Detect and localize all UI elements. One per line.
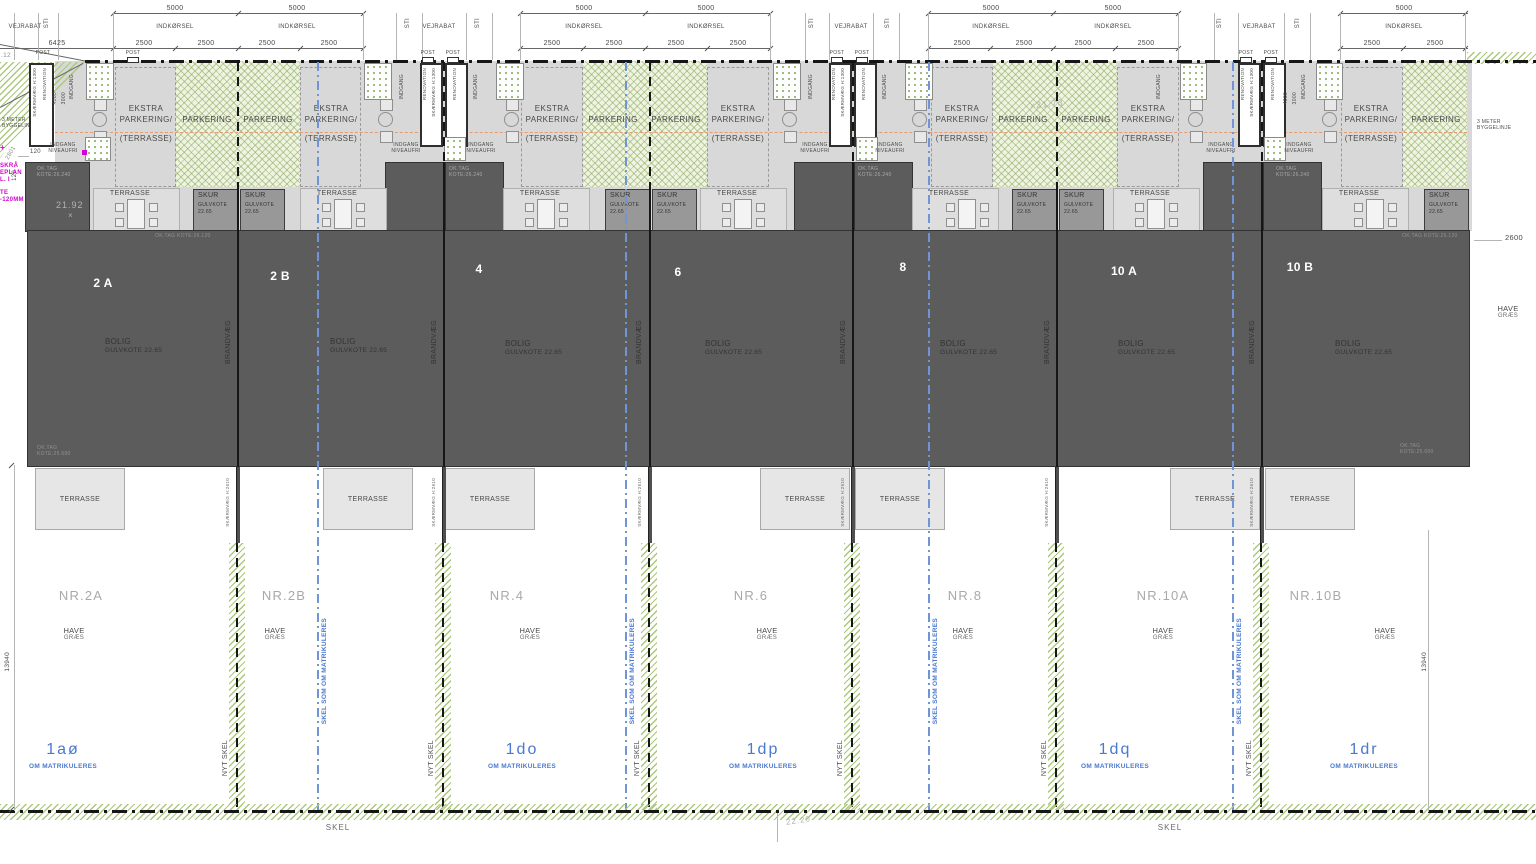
dim-2500: 2500: [1138, 40, 1155, 48]
bolig: BOLIG: [505, 340, 562, 349]
terrasse-label: TERRASSE: [60, 496, 100, 504]
parkering-label: PARKERING: [1411, 116, 1460, 125]
planter-box: [85, 137, 111, 161]
ekstra-l1: EKSTRA: [1345, 103, 1398, 114]
graes: GRÆS: [1152, 635, 1173, 642]
roof-kote-label: OK.TAGKOTE:25.690: [1400, 444, 1434, 455]
terrace-furniture: [320, 199, 368, 233]
post-box: [1240, 57, 1252, 63]
skur-kote: 22.65: [1017, 210, 1031, 216]
nyt-skel-line: [851, 543, 853, 810]
nr-label: NR.6: [734, 589, 768, 603]
screen-wall: [1260, 467, 1264, 543]
graes: GRÆS: [756, 635, 777, 642]
nr-label: NR.10B: [1290, 589, 1343, 603]
planter-box: [1316, 63, 1343, 100]
have-graes-label: HAVEGRÆS: [1152, 627, 1173, 642]
sti-label: STI: [809, 18, 816, 28]
post-box: [447, 57, 459, 63]
screen-wall: [236, 467, 240, 543]
dim-5000: 5000: [289, 5, 306, 13]
blue-skel-line: [625, 62, 627, 810]
terrasse-label: TERRASSE: [348, 496, 388, 504]
entry-roof-block: [385, 162, 444, 232]
table-icon: [537, 199, 555, 229]
skel-line-bottom: [0, 810, 1536, 813]
oktag: OK.TAG: [1402, 233, 1422, 239]
dim-extension-line: [14, 465, 15, 811]
ekstra-l2: PARKERING/: [712, 114, 765, 125]
dim-2500: 2500: [321, 40, 338, 48]
brandvaeg-label: BRANDVÆG: [225, 320, 233, 364]
note-magenta: TE: [0, 190, 8, 197]
indgang-label: INDGANG: [1157, 74, 1163, 99]
dim-line: [0, 48, 363, 49]
ekstra-l3: (TERRASSE): [120, 133, 173, 144]
indkorsel-label: INDKØRSEL: [1094, 24, 1131, 31]
chair-icon: [356, 218, 365, 227]
planter-box: [86, 63, 114, 100]
terrasse-label: TERRASSE: [785, 496, 825, 504]
bolig: BOLIG: [705, 340, 762, 349]
bolig: BOLIG: [105, 338, 162, 347]
om-matrikuleres-label: OM MATRIKULERES: [29, 763, 97, 770]
terrasse-label: TERRASSE: [1290, 496, 1330, 504]
ekstra-parkering-label: EKSTRAPARKERING/(TERRASSE): [526, 103, 579, 144]
boundary-line: [649, 188, 651, 467]
planter-box: [444, 137, 466, 161]
kote: KOTE:25.690: [37, 452, 71, 458]
post-label: POST: [421, 51, 436, 57]
extension-line: [113, 13, 114, 60]
planter-box: [496, 63, 524, 100]
bolig: BOLIG: [940, 340, 997, 349]
dim-3000: 3000: [1293, 92, 1299, 104]
terrasse-label: TERRASSE: [880, 496, 920, 504]
ekstra-l1: EKSTRA: [936, 103, 989, 114]
dim-5000: 5000: [576, 5, 593, 13]
parkering-label: PARKERING: [588, 116, 637, 125]
have: HAVE: [63, 627, 84, 635]
chair-icon: [946, 218, 955, 227]
renovation-box: RENOVATION SKÆRMVÆG H:1300: [1238, 63, 1261, 147]
roof-kote-label: OK.TAGKOTE:26.240: [37, 167, 71, 178]
bolig: BOLIG: [1118, 340, 1175, 349]
skur-kote: 22.65: [657, 210, 671, 216]
post-label: POST: [830, 51, 845, 57]
chair-icon: [980, 203, 989, 212]
skaermvaeg-label: SKÆRMVÆG H:1300: [432, 68, 437, 117]
chair-icon: [115, 218, 124, 227]
have-graes-label: HAVEGRÆS: [63, 627, 84, 642]
ekstra-parkering-label: EKSTRAPARKERING/(TERRASSE): [120, 103, 173, 144]
boundary-line: [852, 162, 854, 467]
nyt-skel-label: NYT SKEL: [1246, 740, 1254, 776]
terrasse-label: TERRASSE: [110, 190, 150, 198]
chair-icon: [946, 203, 955, 212]
parcel-id: 1aø: [46, 741, 80, 759]
renovation-box: RENOVATION: [854, 63, 877, 147]
gulvkote: GULVKOTE 22.65: [1118, 349, 1175, 356]
terrasse-label: TERRASSE: [1339, 190, 1379, 198]
sti-label: STI: [405, 18, 412, 28]
terrace-furniture: [720, 199, 768, 233]
post-label: POST: [36, 51, 51, 57]
ekstra-parkering-label: EKSTRAPARKERING/(TERRASSE): [305, 103, 358, 144]
terrasse-label: TERRASSE: [1130, 190, 1170, 198]
extension-line: [14, 13, 15, 60]
skur-gulvkote: GULVKOTE: [657, 203, 686, 209]
chair-icon: [1135, 218, 1144, 227]
extension-line: [1178, 13, 1179, 60]
planter-box: [1264, 137, 1286, 161]
ekstra-l2: PARKERING/: [526, 114, 579, 125]
have: HAVE: [264, 627, 285, 635]
chair-icon: [559, 218, 568, 227]
parcel-id: 1do: [506, 741, 539, 759]
dim-3000: 3000: [62, 92, 68, 104]
kote: KOTE:26.240: [449, 173, 483, 179]
kote: KOTE:26.120: [177, 233, 211, 239]
nr-label: NR.8: [948, 589, 982, 603]
indkorsel-label: INDKØRSEL: [565, 24, 602, 31]
skaermvaeg-label: SKÆRMVÆG H:1300: [1250, 68, 1255, 117]
bolig-label: BOLIGGULVKOTE 22.65: [105, 338, 162, 354]
unit-number: 10 B: [1287, 261, 1314, 274]
chair-icon: [115, 203, 124, 212]
skaermvaeg-2610-label: SKÆRMVÆG H:2610: [432, 478, 437, 527]
skur-gulvkote: GULVKOTE: [1017, 203, 1046, 209]
terrasse-label: TERRASSE: [470, 496, 510, 504]
chair-icon: [756, 203, 765, 212]
dim-2500: 2500: [136, 40, 153, 48]
extension-line: [1465, 13, 1466, 60]
bolig-label: BOLIGGULVKOTE 22.65: [940, 340, 997, 356]
nyt-skel-line: [442, 543, 444, 810]
boundary-line: [443, 62, 445, 162]
extension-line: [873, 13, 874, 60]
dim-2500: 2500: [730, 40, 747, 48]
have: HAVE: [952, 627, 973, 635]
skur-box: SKURGULVKOTE22.65: [1012, 189, 1057, 231]
renovation-box: RENOVATION SKÆRMVÆG H:1300: [829, 63, 852, 147]
kote: KOTE:25.690: [1400, 450, 1434, 456]
indgang-label: INDGANG: [400, 74, 406, 99]
ekstra-parkering-label: EKSTRAPARKERING/(TERRASSE): [712, 103, 765, 144]
terrasse-label: TERRASSE: [520, 190, 560, 198]
niveaufri-l2: NIVEAUFRI: [466, 149, 495, 155]
terrace-furniture: [944, 199, 992, 233]
indgang-label: INDGANG: [883, 74, 889, 99]
ekstra-parkering-label: EKSTRAPARKERING/(TERRASSE): [936, 103, 989, 144]
byggelinje-line2: BYGGELINJE: [1477, 126, 1511, 132]
ekstra-parkering-label: EKSTRAPARKERING/(TERRASSE): [1122, 103, 1175, 144]
table-icon: [734, 199, 752, 229]
nr-label: NR.4: [490, 589, 524, 603]
note-marker: +: [0, 144, 5, 153]
chair-icon: [559, 203, 568, 212]
dim-2500: 2500: [954, 40, 971, 48]
renovation-box: RENOVATION: [445, 63, 468, 147]
ekstra-l1: EKSTRA: [305, 103, 358, 114]
have: HAVE: [1374, 627, 1395, 635]
renovation-label: RENOVATION: [453, 68, 458, 100]
bolig: BOLIG: [330, 338, 387, 347]
grill-icon: [92, 112, 107, 127]
dim-2500: 2500: [1075, 40, 1092, 48]
spot-elevation-marker: ×: [68, 212, 73, 221]
om-matrikuleres-label: OM MATRIKULERES: [729, 763, 797, 770]
extension-line: [466, 13, 467, 60]
extension-line: [928, 13, 929, 60]
ekstra-l3: (TERRASSE): [526, 133, 579, 144]
grill-icon: [1188, 112, 1203, 127]
unit-number: 8: [900, 261, 907, 274]
post-box: [127, 57, 139, 63]
parcel-id: 1dp: [747, 741, 780, 759]
indgang-niveaufri-label: INDGANGNIVEAUFRI: [1284, 143, 1313, 154]
brandvaeg-label: BRANDVÆG: [636, 320, 644, 364]
dim-2500: 2500: [1016, 40, 1033, 48]
post-label: POST: [1239, 51, 1254, 57]
gulvkote: GULVKOTE 22.65: [705, 349, 762, 356]
nyt-skel-label: NYT SKEL: [1041, 740, 1049, 776]
have-graes-label: HAVEGRÆS: [519, 627, 540, 642]
bolig-label: BOLIGGULVKOTE 22.65: [330, 338, 387, 354]
dim-2600: 2600: [1505, 234, 1523, 242]
graes: GRÆS: [63, 635, 84, 642]
nr-label: NR.2A: [59, 589, 103, 603]
dim-4000: 4000: [53, 92, 59, 104]
indkorsel-label: INDKØRSEL: [156, 24, 193, 31]
boundary-line: [237, 62, 239, 188]
have-graes-label: HAVEGRÆS: [1374, 627, 1395, 642]
post-label: POST: [126, 51, 141, 57]
niveaufri-l2: NIVEAUFRI: [391, 149, 420, 155]
dim-4000: 4000: [1284, 92, 1290, 104]
site-plan: .12 3 METER BYGGELINJE 3 METER BYGGELINJ…: [0, 0, 1536, 864]
vejrabat-label: VEJRABAT: [423, 24, 456, 31]
bolig-label: BOLIGGULVKOTE 22.65: [705, 340, 762, 356]
skur-box: SKURGULVKOTE22.65: [605, 189, 650, 231]
sti-label: STI: [1217, 18, 1224, 28]
screen-wall: [851, 467, 855, 543]
indgang-niveaufri-label: INDGANGNIVEAUFRI: [466, 143, 495, 154]
ekstra-l3: (TERRASSE): [1345, 133, 1398, 144]
roof-kote-label: OK.TAGKOTE:26.240: [1276, 167, 1310, 178]
extension-line: [58, 13, 59, 60]
skaermvaeg-2610-label: SKÆRMVÆG H:2610: [226, 478, 231, 527]
extension-line: [492, 13, 493, 60]
renovation-box: RENOVATION: [1263, 63, 1286, 147]
dim-5000: 5000: [698, 5, 715, 13]
terrasse-label: TERRASSE: [929, 190, 969, 198]
renovation-label: RENOVATION: [423, 68, 428, 100]
skaermvaeg-2610-label: SKÆRMVÆG H:2610: [1250, 478, 1255, 527]
boundary-line: [1261, 162, 1263, 467]
chair-icon: [356, 203, 365, 212]
parkering-label: PARKERING: [651, 116, 700, 125]
ekstra-l1: EKSTRA: [712, 103, 765, 114]
skur-label: SKUR: [1017, 192, 1038, 200]
extension-line: [396, 13, 397, 60]
vejrabat-label: VEJRABAT: [835, 24, 868, 31]
skaermvaeg-2610-label: SKÆRMVÆG H:2610: [841, 478, 846, 527]
chair-icon: [756, 218, 765, 227]
indgang-label: INDGANG: [474, 74, 480, 99]
bolig-label: BOLIGGULVKOTE 22.65: [505, 340, 562, 356]
graes: GRÆS: [1497, 313, 1518, 320]
renovation-label: RENOVATION: [1241, 68, 1246, 100]
bolig-label: BOLIGGULVKOTE 22.65: [1118, 340, 1175, 356]
note-magenta: -120MM: [0, 197, 24, 204]
skur-gulvkote: GULVKOTE: [1064, 203, 1093, 209]
corner-ref: .12: [1, 52, 11, 59]
renovation-label: RENOVATION: [1271, 68, 1276, 100]
unit-number: 2 B: [270, 270, 290, 283]
dim-120: 120: [30, 149, 41, 156]
skur-gulvkote: GULVKOTE: [245, 203, 274, 209]
ekstra-l1: EKSTRA: [120, 103, 173, 114]
boundary-line: [1261, 62, 1263, 162]
byggelinje-label: 3 METER BYGGELINJE: [1477, 120, 1511, 131]
dim-6425: 6425: [49, 40, 66, 48]
ekstra-l1: EKSTRA: [526, 103, 579, 114]
post-label: POST: [446, 51, 461, 57]
boundary-line: [852, 62, 854, 162]
nr-label: NR.10A: [1137, 589, 1190, 603]
graes: GRÆS: [952, 635, 973, 642]
boundary-line: [649, 62, 651, 188]
dim-13940: 13940: [1421, 652, 1428, 672]
chair-icon: [322, 218, 331, 227]
screen-wall: [442, 467, 446, 543]
ekstra-parkering-label: EKSTRAPARKERING/(TERRASSE): [1345, 103, 1398, 144]
skur-label: SKUR: [657, 192, 678, 200]
gulvkote: GULVKOTE 22.65: [105, 347, 162, 354]
screen-wall: [1055, 467, 1059, 543]
skur-box: SKURGULVKOTE22.65: [193, 189, 238, 231]
oktag: OK.TAG: [155, 233, 175, 239]
dim-2500: 2500: [259, 40, 276, 48]
skur-label: SKUR: [610, 192, 631, 200]
terrace-furniture: [523, 199, 571, 233]
post-label: POST: [855, 51, 870, 57]
planter-box: [773, 63, 801, 100]
dim-5000: 5000: [167, 5, 184, 13]
table-icon: [958, 199, 976, 229]
brandvaeg-label: BRANDVÆG: [840, 320, 848, 364]
grill-icon: [504, 112, 519, 127]
om-matrikuleres-label: OM MATRIKULERES: [1330, 763, 1398, 770]
chair-icon: [722, 218, 731, 227]
nyt-skel-line: [648, 543, 650, 810]
skel-som-label: SKEL SOM OM MATRIKULERES: [932, 618, 939, 724]
dim-5000: 5000: [983, 5, 1000, 13]
note-magenta: L. I: [0, 177, 10, 184]
extension-line: [1214, 13, 1215, 60]
gulvkote: GULVKOTE 22.65: [940, 349, 997, 356]
sti-label: STI: [475, 18, 482, 28]
skur-box: SKURGULVKOTE22.65: [240, 189, 285, 231]
sti-label: STI: [44, 18, 51, 28]
skur-label: SKUR: [1064, 192, 1085, 200]
screen-wall: [648, 467, 652, 543]
unit-number: 10 A: [1111, 265, 1137, 278]
extension-line: [770, 13, 771, 60]
skel-som-label: SKEL SOM OM MATRIKULERES: [321, 618, 328, 724]
kote: KOTE:26.120: [1424, 233, 1458, 239]
niveaufri-l2: NIVEAUFRI: [48, 149, 77, 155]
blue-skel-line: [928, 62, 930, 810]
skur-kote: 22.65: [245, 210, 259, 216]
indgang-niveaufri-label: INDGANGNIVEAUFRI: [800, 143, 829, 154]
graes: GRÆS: [1374, 635, 1395, 642]
renovation-label: RENOVATION: [43, 68, 48, 100]
ekstra-l3: (TERRASSE): [936, 133, 989, 144]
note-magenta: EPLAN: [0, 170, 22, 177]
skur-kote: 22.65: [198, 210, 212, 216]
unit-number: 6: [675, 266, 682, 279]
terrasse-label: TERRASSE: [1195, 496, 1235, 504]
chair-icon: [1388, 218, 1397, 227]
table-icon: [1366, 199, 1384, 229]
kote: KOTE:26.240: [37, 173, 71, 179]
terrace-furniture: [113, 199, 161, 233]
brandvaeg-label: BRANDVÆG: [431, 320, 439, 364]
dim-13940: 13940: [4, 652, 11, 672]
skaermvaeg-2610-label: SKÆRMVÆG H:2610: [1045, 478, 1050, 527]
indgang-niveaufri-label: INDGANGNIVEAUFRI: [48, 143, 77, 154]
have-graes-label: HAVEGRÆS: [952, 627, 973, 642]
indkorsel-label: INDKØRSEL: [278, 24, 315, 31]
chair-icon: [525, 203, 534, 212]
roof-kote-label: OK.TAG KOTE:26.120: [155, 234, 211, 240]
post-box: [422, 57, 434, 63]
renovation-label: RENOVATION: [832, 68, 837, 100]
entry-roof-block: [794, 162, 853, 232]
dim-2500: 2500: [198, 40, 215, 48]
skur-label: SKUR: [198, 192, 219, 200]
kote: KOTE:26.240: [858, 173, 892, 179]
chair-icon: [1388, 203, 1397, 212]
chair-icon: [1169, 203, 1178, 212]
indgang-label: INDGANG: [1302, 74, 1308, 99]
graes: GRÆS: [264, 635, 285, 642]
dim-leader-line: [1474, 240, 1502, 241]
dim-2500: 2500: [606, 40, 623, 48]
bolig-label: BOLIGGULVKOTE 22.65: [1335, 340, 1392, 356]
have-graes-label: HAVEGRÆS: [1497, 305, 1518, 320]
indkorsel-label: INDKØRSEL: [1385, 24, 1422, 31]
sti-label: STI: [1295, 18, 1302, 28]
planter-box: [1180, 63, 1207, 100]
om-matrikuleres-label: OM MATRIKULERES: [1081, 763, 1149, 770]
planter-box: [364, 63, 392, 100]
roof-kote-label: OK.TAGKOTE:26.240: [858, 167, 892, 178]
renovation-box: RENOVATION SKÆRMVÆG H:1300: [420, 63, 443, 147]
ekstra-l1: EKSTRA: [1122, 103, 1175, 114]
ekstra-l2: PARKERING/: [305, 114, 358, 125]
roof-kote-label: OK.TAGKOTE:25.690: [37, 446, 71, 457]
skel-som-label: SKEL SOM OM MATRIKULERES: [629, 618, 636, 724]
parkering-label: PARKERING: [1061, 116, 1110, 125]
skaermvaeg-label: SKÆRMVÆG H:1300: [841, 68, 846, 117]
table-icon: [1147, 199, 1165, 229]
nyt-skel-line: [1055, 543, 1057, 810]
vejrabat-label: VEJRABAT: [9, 24, 42, 31]
niveaufri-l2: NIVEAUFRI: [875, 149, 904, 155]
